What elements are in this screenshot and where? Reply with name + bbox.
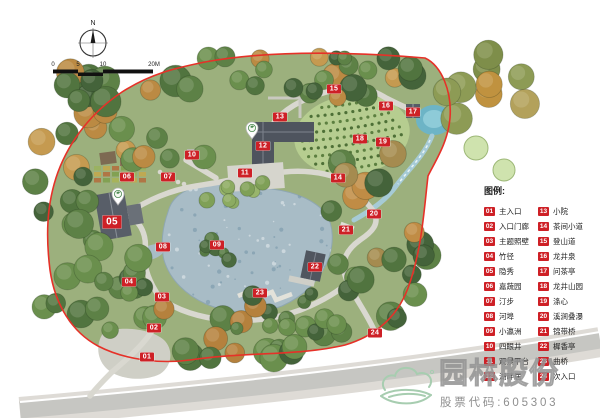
legend-item-number: 19: [538, 297, 549, 306]
legend-item-label: 登山道: [553, 236, 576, 247]
legend: 图例: 01主入口02入口门廊03主题照壁04竹径05隐秀06嘉蔬园07汀步08…: [484, 184, 583, 384]
scale-bar: 0 5 10 20M: [46, 58, 176, 80]
legend-item-23: 23曲桥: [538, 354, 583, 369]
legend-item-label: 嘉蔬园: [499, 281, 522, 292]
tea-circle: [493, 159, 515, 181]
pavilion-wencha: [406, 104, 420, 118]
legend-item-02: 02入口门廊: [484, 219, 529, 234]
legend-item-number: 09: [484, 327, 495, 336]
scale-tick-5: 5: [76, 62, 80, 68]
legend-item-number: 02: [484, 222, 495, 231]
legend-item-14: 14茶间小道: [538, 219, 583, 234]
legend-item-04: 04竹径: [484, 249, 529, 264]
tea-circle: [464, 136, 488, 160]
legend-item-label: 龙井山园: [553, 281, 583, 292]
legend-item-label: 入口门廊: [499, 221, 529, 232]
legend-item-01: 01主入口: [484, 204, 529, 219]
legend-item-label: 竹径: [499, 251, 514, 262]
legend-column: 13小院14茶间小道15登山道16龙井泉17问茶亭18龙井山园19涤心20溪涧叠…: [538, 204, 583, 384]
legend-item-label: 汀步: [499, 296, 514, 307]
legend-item-label: 四眼井: [499, 341, 522, 352]
legend-item-number: 24: [538, 372, 549, 381]
legend-item-number: 20: [538, 312, 549, 321]
legend-item-10: 10四眼井: [484, 339, 529, 354]
legend-item-label: 观景平台: [499, 356, 529, 367]
legend-title: 图例:: [484, 184, 583, 197]
legend-item-number: 14: [538, 222, 549, 231]
legend-item-number: 12: [484, 372, 495, 381]
north-arrow-icon: N: [74, 16, 112, 62]
legend-item-label: 主题照壁: [499, 236, 529, 247]
scale-tick-20: 20M: [148, 62, 160, 68]
legend-item-label: 涤心: [553, 296, 568, 307]
legend-item-22: 22樨香亭: [538, 339, 583, 354]
legend-item-15: 15登山道: [538, 234, 583, 249]
legend-item-number: 01: [484, 207, 495, 216]
legend-item-13: 13小院: [538, 204, 583, 219]
legend-item-number: 23: [538, 357, 549, 366]
legend-item-09: 09小瀛洲: [484, 324, 529, 339]
legend-item-number: 04: [484, 252, 495, 261]
legend-item-label: 溪涧叠瀑: [553, 311, 583, 322]
legend-item-number: 05: [484, 267, 495, 276]
legend-item-20: 20溪涧叠瀑: [538, 309, 583, 324]
legend-item-03: 03主题照壁: [484, 234, 529, 249]
legend-item-number: 08: [484, 312, 495, 321]
legend-item-number: 16: [538, 252, 549, 261]
legend-item-label: 河埠: [499, 311, 514, 322]
legend-item-label: 小瀛洲: [499, 326, 522, 337]
scale-tick-0: 0: [51, 62, 55, 68]
legend-item-number: 07: [484, 297, 495, 306]
legend-item-label: 樨香亭: [553, 341, 576, 352]
legend-item-number: 03: [484, 237, 495, 246]
legend-item-18: 18龙井山园: [538, 279, 583, 294]
legend-item-17: 17问茶亭: [538, 264, 583, 279]
legend-item-number: 06: [484, 282, 495, 291]
legend-item-number: 22: [538, 342, 549, 351]
legend-item-21: 21锦带桥: [538, 324, 583, 339]
scale-tick-10: 10: [100, 62, 107, 68]
legend-item-label: 曲桥: [553, 356, 568, 367]
legend-item-label: 主入口: [499, 206, 522, 217]
north-label: N: [90, 20, 95, 27]
legend-item-label: 次入口: [553, 371, 576, 382]
legend-item-label: 小院: [553, 206, 568, 217]
legend-item-11: 11观景平台: [484, 354, 529, 369]
legend-item-number: 13: [538, 207, 549, 216]
legend-item-number: 21: [538, 327, 549, 336]
legend-item-05: 05隐秀: [484, 264, 529, 279]
legend-item-number: 18: [538, 282, 549, 291]
legend-item-label: 茶间小道: [553, 221, 583, 232]
legend-item-08: 08河埠: [484, 309, 529, 324]
legend-item-number: 17: [538, 267, 549, 276]
site-plan-page: 0102030405060708091011121314151617181920…: [0, 0, 600, 418]
legend-item-label: 隐秀: [499, 266, 514, 277]
legend-item-label: 龙井泉: [553, 251, 576, 262]
legend-item-number: 15: [538, 237, 549, 246]
legend-item-16: 16龙井泉: [538, 249, 583, 264]
legend-item-label: 湖畔居: [499, 371, 522, 382]
legend-item-label: 问茶亭: [553, 266, 576, 277]
legend-item-12: 12湖畔居: [484, 369, 529, 384]
legend-item-number: 10: [484, 342, 495, 351]
legend-item-number: 11: [484, 357, 495, 366]
legend-item-06: 06嘉蔬园: [484, 279, 529, 294]
legend-item-19: 19涤心: [538, 294, 583, 309]
legend-item-24: 24次入口: [538, 369, 583, 384]
legend-column: 01主入口02入口门廊03主题照壁04竹径05隐秀06嘉蔬园07汀步08河埠09…: [484, 204, 529, 384]
legend-item-label: 锦带桥: [553, 326, 576, 337]
legend-item-07: 07汀步: [484, 294, 529, 309]
